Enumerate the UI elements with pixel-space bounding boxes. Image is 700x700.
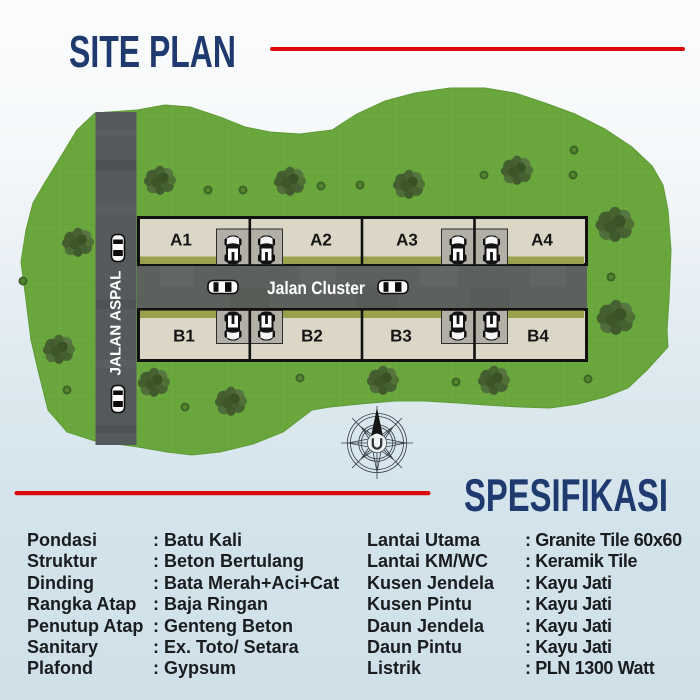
svg-text:A3: A3 — [396, 231, 418, 250]
svg-text:SPESIFIKASI: SPESIFIKASI — [464, 469, 668, 521]
svg-text:A1: A1 — [170, 231, 192, 250]
svg-text:B2: B2 — [301, 327, 323, 346]
svg-text:A2: A2 — [310, 231, 332, 250]
svg-text:B1: B1 — [173, 327, 195, 346]
svg-text:B4: B4 — [527, 327, 549, 346]
svg-text:Jalan Cluster: Jalan Cluster — [267, 278, 365, 298]
svg-text:SITE PLAN: SITE PLAN — [69, 26, 236, 77]
svg-text:JALAN ASPAL: JALAN ASPAL — [108, 271, 125, 376]
svg-text:B3: B3 — [390, 327, 412, 346]
svg-text:A4: A4 — [531, 231, 553, 250]
